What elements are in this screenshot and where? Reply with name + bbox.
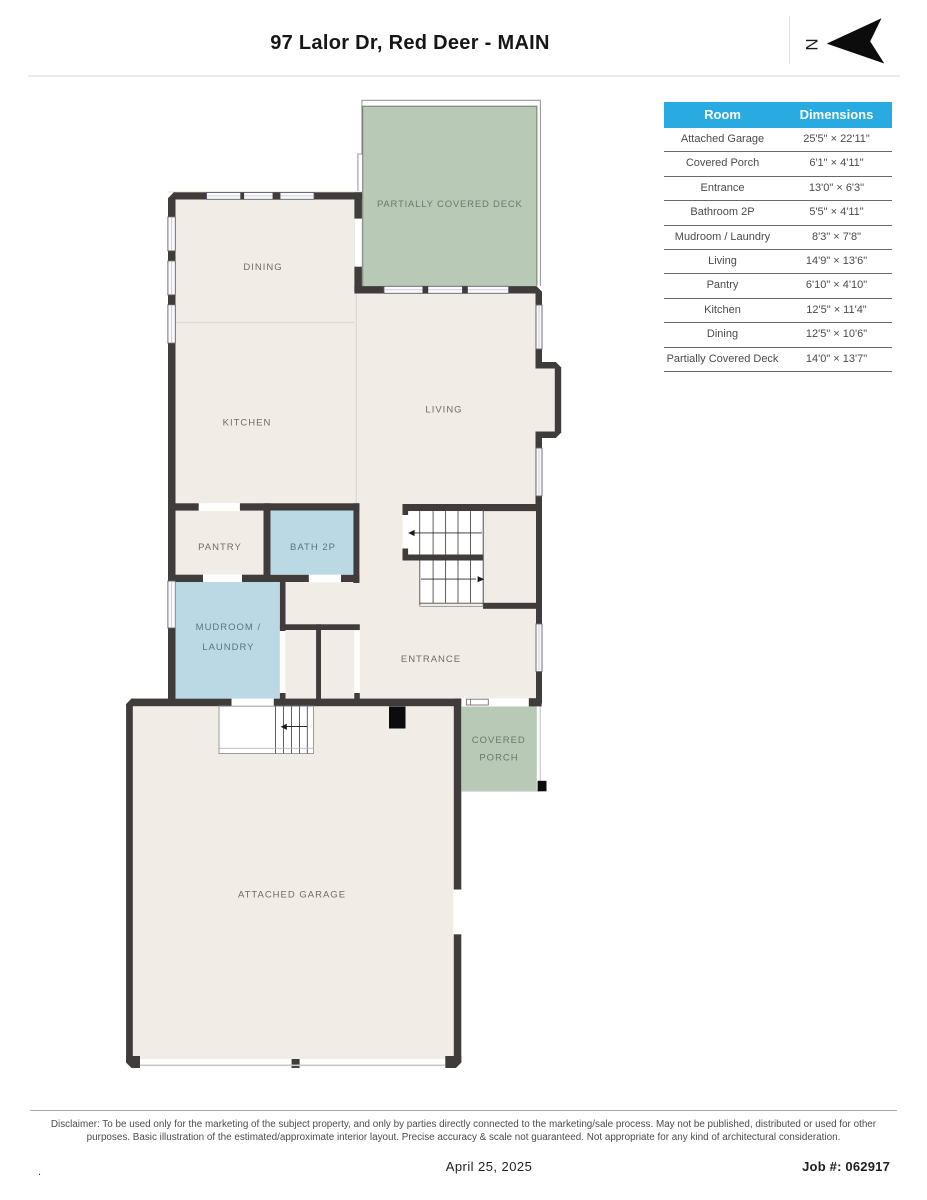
svg-text:LIVING: LIVING [425,405,462,416]
svg-text:ENTRANCE: ENTRANCE [401,654,461,665]
svg-text:DINING: DINING [243,262,282,273]
svg-text:MUDROOM /: MUDROOM / [196,622,261,633]
svg-text:KITCHEN: KITCHEN [223,418,272,429]
svg-text:BATH 2P: BATH 2P [290,542,336,553]
svg-text:PARTIALLY COVERED DECK: PARTIALLY COVERED DECK [377,199,523,210]
svg-text:COVERED: COVERED [472,735,526,746]
svg-text:PORCH: PORCH [479,753,518,764]
svg-text:LAUNDRY: LAUNDRY [202,642,254,653]
svg-text:ATTACHED GARAGE: ATTACHED GARAGE [238,889,346,900]
svg-text:PANTRY: PANTRY [198,542,242,553]
